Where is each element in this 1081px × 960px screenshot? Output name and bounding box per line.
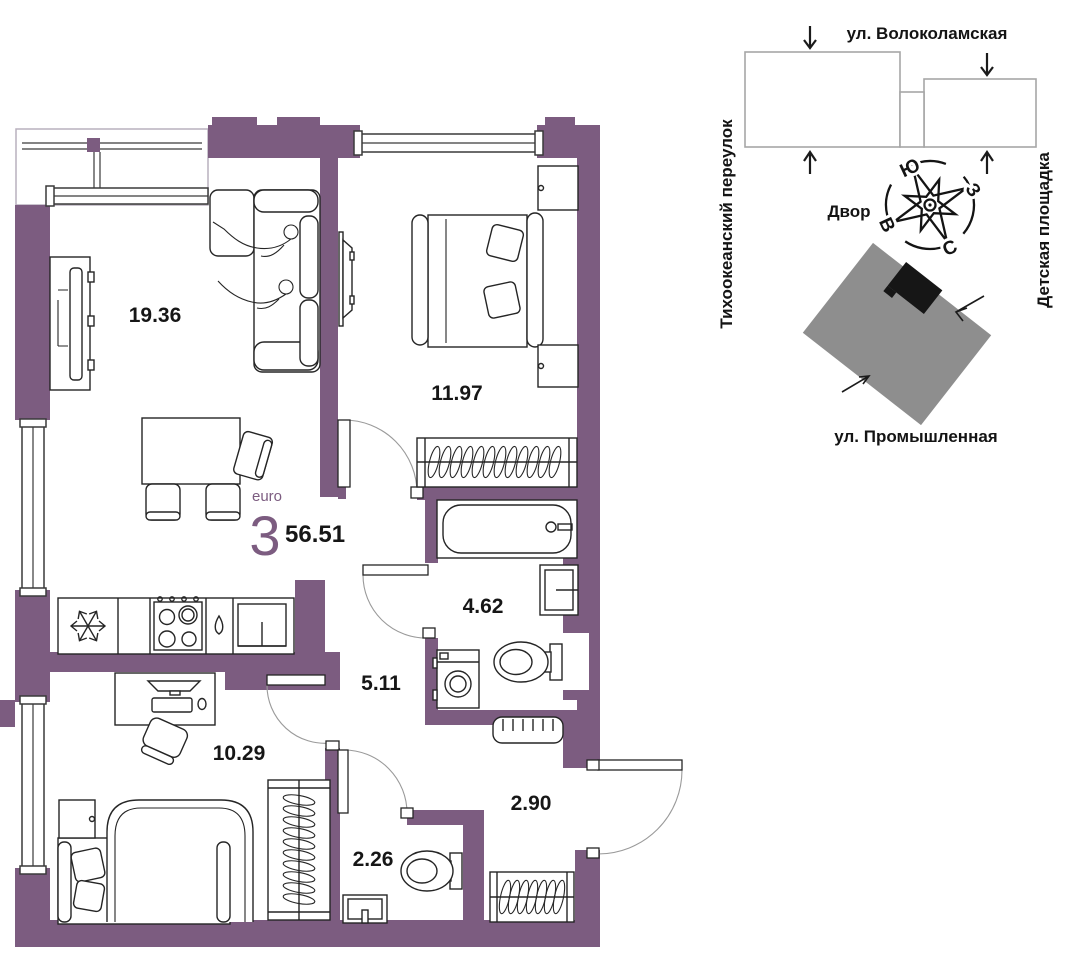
room-area-bedroom: 11.97	[431, 382, 482, 405]
compass-north: С	[940, 236, 962, 261]
window-left-2	[20, 696, 46, 874]
room-area-living: 19.36	[129, 304, 182, 327]
site-building-1	[745, 52, 900, 147]
room-area-bedroom-2: 10.29	[213, 742, 266, 765]
street-top-label: ул. Волоколамская	[847, 24, 1008, 43]
window-left-1	[20, 419, 46, 596]
bathroom-sink	[540, 565, 578, 615]
desk	[115, 673, 215, 767]
kitchen-sink	[238, 604, 286, 646]
toilet-bathroom	[494, 642, 562, 682]
street-bottom-label: ул. Промышленная	[834, 427, 997, 446]
site-building-2	[924, 79, 1036, 147]
apartment-plan-page: 19.36 11.97 4.62 5.11 10.29 2.90 2.26 eu…	[0, 0, 1081, 960]
bedroom-tv	[339, 232, 354, 326]
tv-unit	[50, 257, 94, 390]
sofa	[210, 190, 320, 372]
nightstands	[538, 166, 578, 387]
compass-east: В	[874, 215, 899, 236]
door-entrance	[587, 760, 682, 858]
street-left-label: Тихоокеанский переулок	[717, 119, 736, 329]
bathtub	[437, 500, 577, 558]
compass-icon: Ю З В С	[874, 152, 985, 261]
door-wc	[338, 750, 413, 818]
room-area-wc: 2.26	[353, 848, 394, 871]
floor-plan: 19.36 11.97 4.62 5.11 10.29 2.90 2.26 eu…	[0, 117, 682, 947]
site-target-building	[803, 243, 991, 425]
window-bedroom	[354, 131, 543, 155]
wardrobe-rack-bedroom	[417, 438, 577, 487]
total-area: 56.51	[285, 521, 345, 548]
room-area-bathroom: 4.62	[463, 595, 504, 618]
bed-double	[412, 213, 543, 347]
door-bedroom	[338, 420, 423, 498]
room-area-hall: 5.11	[361, 672, 401, 695]
kitchen-counter	[58, 597, 294, 654]
stove	[154, 597, 202, 650]
yard-label: Двор	[827, 202, 870, 221]
wardrobe-rack-bedroom-2	[268, 780, 330, 920]
site-building-connector	[900, 92, 924, 147]
door-bathroom	[363, 565, 435, 638]
apartment-summary: euro 3 56.51	[249, 488, 345, 567]
toilet-wc	[401, 851, 462, 891]
shoe-rack-corridor	[490, 872, 574, 922]
washing-machine	[433, 650, 479, 708]
street-right-label: Детская площадка	[1034, 152, 1053, 308]
window-living	[46, 186, 208, 206]
type-label: euro	[252, 488, 282, 505]
shoe-bench	[493, 717, 563, 743]
rooms-count: 3	[249, 504, 280, 567]
room-area-corridor: 2.90	[511, 792, 552, 815]
floorplan-canvas: 19.36 11.97 4.62 5.11 10.29 2.90 2.26 eu…	[0, 0, 1081, 960]
wc-sink	[343, 895, 387, 923]
site-plan: ул. Волоколамская Тихоокеанский переулок…	[717, 24, 1053, 446]
